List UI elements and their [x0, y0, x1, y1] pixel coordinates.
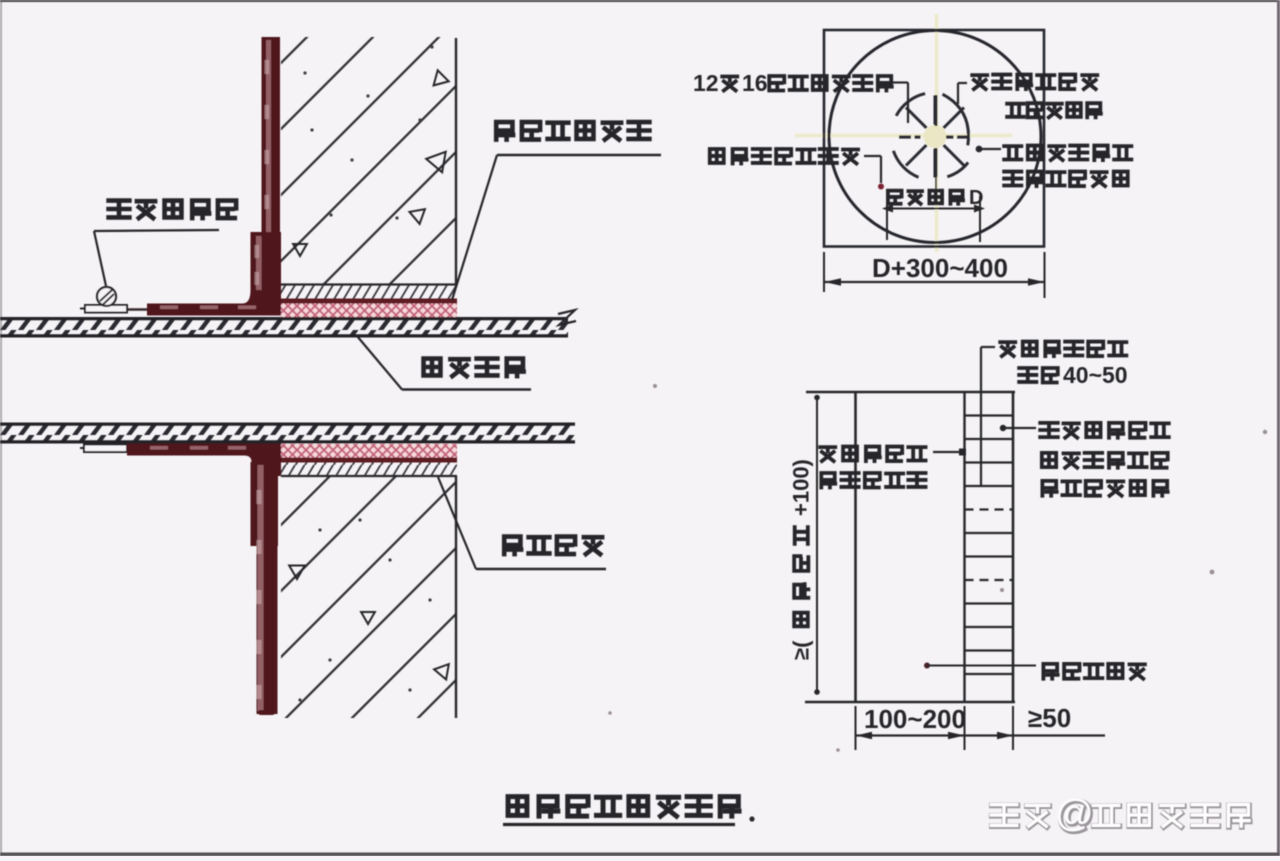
- svg-text:D: D: [969, 187, 983, 209]
- svg-text:16: 16: [742, 70, 768, 96]
- svg-text:D+300~400: D+300~400: [872, 253, 1008, 283]
- svg-text:40~50: 40~50: [1063, 362, 1128, 388]
- svg-text:@: @: [1055, 793, 1094, 835]
- svg-text:≥50: ≥50: [1028, 703, 1071, 733]
- svg-text:12: 12: [693, 70, 719, 96]
- svg-text:+100): +100): [789, 459, 814, 516]
- svg-text:100~200: 100~200: [864, 704, 966, 734]
- svg-text:≥(: ≥(: [789, 640, 814, 660]
